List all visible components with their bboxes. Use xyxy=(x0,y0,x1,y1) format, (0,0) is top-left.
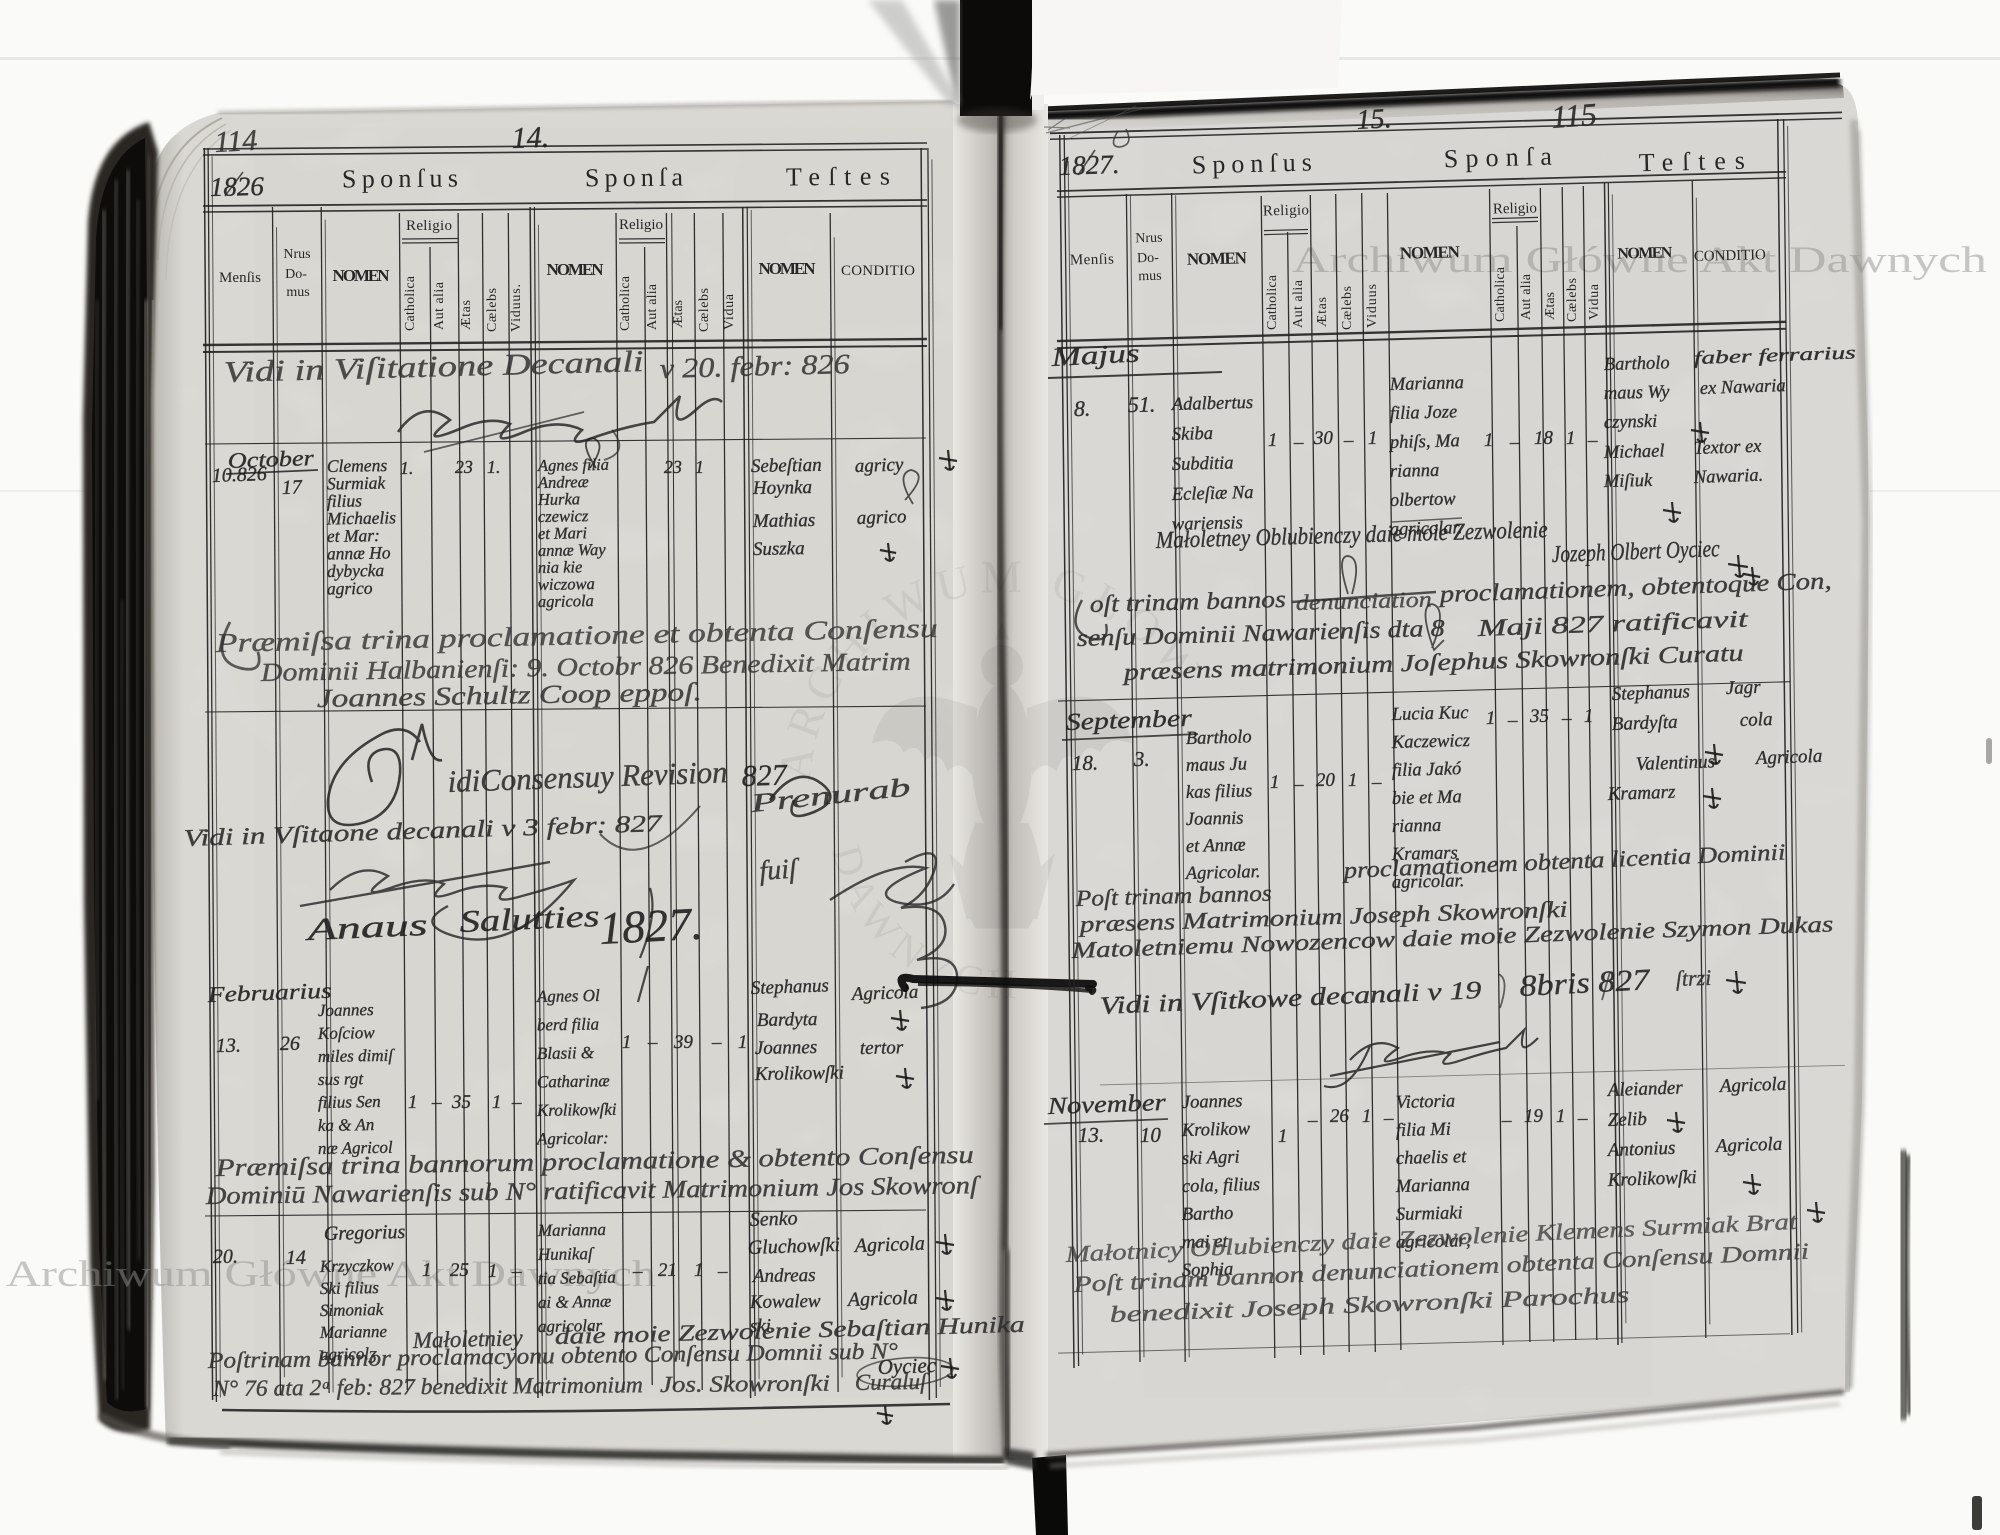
svg-text:Victoria: Victoria xyxy=(1396,1091,1456,1113)
svg-text:Menſis: Menſis xyxy=(1070,251,1115,268)
svg-text:8.: 8. xyxy=(1074,396,1091,421)
svg-text:Bartho: Bartho xyxy=(1182,1204,1234,1225)
svg-text:Anaus: Anaus xyxy=(304,907,429,947)
svg-text:1: 1 xyxy=(1484,430,1494,451)
svg-text:sus rgt: sus rgt xyxy=(318,1069,365,1089)
svg-text:November: November xyxy=(1046,1090,1167,1120)
svg-text:Catholica: Catholica xyxy=(1493,266,1508,322)
svg-text:Zelib: Zelib xyxy=(1607,1109,1647,1131)
svg-text:Sebeſtian: Sebeſtian xyxy=(751,455,822,477)
svg-text:Agricola: Agricola xyxy=(849,982,918,1005)
svg-text:Nrus: Nrus xyxy=(283,247,310,262)
svg-text:Jagr: Jagr xyxy=(1725,677,1761,699)
svg-text:13.: 13. xyxy=(216,1035,241,1057)
svg-text:Skiba: Skiba xyxy=(1172,424,1214,445)
svg-text:13.: 13. xyxy=(1078,1123,1105,1147)
svg-text:Do-: Do- xyxy=(285,267,307,282)
svg-text:Ætas: Ætas xyxy=(1543,292,1558,320)
svg-text:115: 115 xyxy=(1550,96,1598,135)
svg-text:1: 1 xyxy=(1270,772,1280,793)
svg-text:Bardyſta: Bardyſta xyxy=(1611,712,1677,735)
svg-text:Krolikowſki: Krolikowſki xyxy=(1606,1167,1697,1191)
svg-text:–: – xyxy=(431,1092,442,1113)
svg-text:Kaczewicz: Kaczewicz xyxy=(1391,731,1471,753)
svg-text:14: 14 xyxy=(286,1247,306,1269)
svg-text:1: 1 xyxy=(694,1260,704,1281)
svg-text:phiſs, Ma: phiſs, Ma xyxy=(1388,431,1460,453)
svg-text:Cælebs: Cælebs xyxy=(697,288,712,332)
svg-text:1: 1 xyxy=(1584,706,1594,727)
svg-text:Subditia: Subditia xyxy=(1172,453,1234,475)
svg-text:51.: 51. xyxy=(1128,392,1156,417)
svg-text:Aut alia: Aut alia xyxy=(1291,279,1306,328)
svg-text:Agricolar:: Agricolar: xyxy=(536,1128,609,1148)
svg-text:–: – xyxy=(511,1092,522,1113)
svg-text:35: 35 xyxy=(451,1092,471,1113)
svg-text:20: 20 xyxy=(1316,770,1336,791)
svg-text:et Annæ: et Annæ xyxy=(1186,835,1246,857)
svg-text:1: 1 xyxy=(408,1092,418,1113)
svg-text:Bardyta: Bardyta xyxy=(757,1009,818,1031)
svg-text:filia Joze: filia Joze xyxy=(1390,402,1458,424)
svg-text:–: – xyxy=(647,1032,658,1053)
svg-text:23: 23 xyxy=(455,457,473,477)
svg-text:114: 114 xyxy=(214,124,258,159)
svg-text:Joannis: Joannis xyxy=(1186,808,1244,829)
svg-text:1826: 1826 xyxy=(210,171,265,202)
svg-text:Stephanus: Stephanus xyxy=(1611,681,1690,705)
svg-text:bie et Ma: bie et Ma xyxy=(1392,787,1462,809)
svg-text:Krzyczkow: Krzyczkow xyxy=(319,1256,395,1276)
svg-text:Jos. Skowronſki: Jos. Skowronſki xyxy=(660,1371,830,1397)
svg-text:1: 1 xyxy=(1566,428,1576,449)
svg-text:–: – xyxy=(1293,432,1304,453)
svg-text:–: – xyxy=(632,1261,643,1282)
svg-text:Krolikowſki: Krolikowſki xyxy=(536,1100,617,1120)
svg-text:Agricola: Agricola xyxy=(1713,1134,1782,1157)
svg-text:maus Ju: maus Ju xyxy=(1186,754,1248,776)
svg-text:10: 10 xyxy=(1140,1123,1162,1147)
svg-text:czynski: czynski xyxy=(1604,412,1658,433)
svg-text:kas filius: kas filius xyxy=(1186,781,1253,803)
svg-text:olbertow: olbertow xyxy=(1390,489,1457,511)
svg-text:cola, filius: cola, filius xyxy=(1182,1175,1261,1197)
svg-text:Marianna: Marianna xyxy=(537,1220,606,1240)
svg-text:15.: 15. xyxy=(1356,103,1393,136)
svg-text:Agricola: Agricola xyxy=(845,1287,918,1311)
svg-text:–: – xyxy=(1371,772,1382,793)
svg-text:agricy: agricy xyxy=(854,454,904,477)
svg-text:NOMEN: NOMEN xyxy=(547,260,605,279)
svg-text:Marianna: Marianna xyxy=(1395,1175,1470,1197)
svg-text:mus: mus xyxy=(1138,269,1162,285)
svg-text:3.: 3. xyxy=(1133,747,1150,771)
svg-text:Andreas: Andreas xyxy=(751,1265,816,1287)
svg-text:Miſiuk: Miſiuk xyxy=(1603,471,1654,492)
svg-text:1: 1 xyxy=(695,457,704,477)
svg-text:Stephanus: Stephanus xyxy=(750,975,829,999)
svg-text:Ecleſiæ Na: Ecleſiæ Na xyxy=(1171,483,1254,505)
svg-text:1: 1 xyxy=(1268,430,1278,451)
svg-text:Curaluſ: Curaluſ xyxy=(855,1369,931,1395)
svg-text:oſt trinam bannos: oſt trinam bannos xyxy=(1089,587,1286,618)
svg-text:14.: 14. xyxy=(511,121,550,155)
svg-text:Februarius: Februarius xyxy=(206,978,332,1007)
svg-text:tia Sebaſtia: tia Sebaſtia xyxy=(538,1268,616,1288)
svg-text:Salutties: Salutties xyxy=(459,898,600,939)
svg-text:1827.: 1827. xyxy=(1058,149,1120,181)
svg-text:–: – xyxy=(1577,1108,1588,1129)
svg-text:maus Wy: maus Wy xyxy=(1604,382,1671,404)
svg-text:18: 18 xyxy=(1534,428,1554,449)
svg-text:–: – xyxy=(1507,710,1518,731)
svg-text:Aut alia: Aut alia xyxy=(432,281,447,330)
svg-text:1: 1 xyxy=(1486,708,1496,729)
svg-text:Religio: Religio xyxy=(406,218,452,234)
svg-text:Cælebs: Cælebs xyxy=(1565,278,1580,322)
svg-text:Krolikow: Krolikow xyxy=(1181,1119,1251,1141)
svg-text:CONDITIO: CONDITIO xyxy=(841,263,915,279)
svg-text:–: – xyxy=(511,1261,522,1282)
svg-text:Kramarz: Kramarz xyxy=(1606,782,1676,805)
svg-text:Senko: Senko xyxy=(749,1207,798,1231)
svg-text:10.826: 10.826 xyxy=(211,463,267,487)
svg-text:1: 1 xyxy=(1348,770,1358,791)
svg-text:30: 30 xyxy=(1313,428,1334,449)
svg-text:–: – xyxy=(1383,1108,1394,1129)
svg-text:cola: cola xyxy=(1739,709,1772,731)
svg-text:Catholica: Catholica xyxy=(1265,274,1280,330)
svg-text:17: 17 xyxy=(281,476,303,499)
svg-text:Cælebs: Cælebs xyxy=(485,288,500,332)
svg-text:Krolikowſki: Krolikowſki xyxy=(754,1062,844,1085)
svg-text:rianna: rianna xyxy=(1390,461,1440,482)
svg-text:filius Sen: filius Sen xyxy=(318,1092,381,1112)
svg-text:Joannes: Joannes xyxy=(755,1037,818,1059)
svg-text:21: 21 xyxy=(658,1260,677,1281)
svg-text:ski Agri: ski Agri xyxy=(1182,1147,1240,1169)
svg-text:ex Nawaria: ex Nawaria xyxy=(1699,376,1785,399)
svg-text:1: 1 xyxy=(488,1261,498,1282)
svg-text:–: – xyxy=(1587,430,1598,451)
svg-text:26: 26 xyxy=(280,1033,300,1055)
svg-text:23: 23 xyxy=(664,457,682,477)
svg-text:1: 1 xyxy=(1556,1106,1566,1127)
svg-text:Agricola: Agricola xyxy=(1717,1074,1786,1097)
svg-text:39: 39 xyxy=(673,1032,694,1053)
svg-text:NOMEN: NOMEN xyxy=(333,266,391,285)
svg-text:20.: 20. xyxy=(213,1246,238,1268)
svg-text:Do-: Do- xyxy=(1137,251,1159,267)
svg-text:Catholica: Catholica xyxy=(403,275,418,331)
svg-text:CONDITIO: CONDITIO xyxy=(1694,247,1767,265)
svg-text:Catharinæ: Catharinæ xyxy=(537,1071,610,1091)
svg-text:miles dimiſ: miles dimiſ xyxy=(318,1046,396,1066)
svg-text:chaelis et: chaelis et xyxy=(1396,1147,1468,1169)
svg-text:1: 1 xyxy=(622,1032,632,1053)
svg-text:–: – xyxy=(1509,432,1520,453)
svg-text:Valentinus: Valentinus xyxy=(1635,751,1715,775)
svg-text:1: 1 xyxy=(1362,1106,1372,1127)
svg-text:fuiſ: fuiſ xyxy=(758,853,801,887)
svg-text:–: – xyxy=(711,1032,722,1053)
svg-text:Mathias: Mathias xyxy=(752,510,816,532)
svg-text:35: 35 xyxy=(1529,706,1549,727)
svg-text:filia Mi: filia Mi xyxy=(1396,1120,1452,1141)
svg-text:Koſciow: Koſciow xyxy=(317,1023,376,1043)
svg-text:Aleiander: Aleiander xyxy=(1605,1077,1683,1101)
svg-text:Hunikaſ: Hunikaſ xyxy=(537,1244,595,1264)
svg-text:Lucia Kuc: Lucia Kuc xyxy=(1391,703,1470,725)
svg-text:Religio: Religio xyxy=(1493,200,1537,217)
svg-text:1: 1 xyxy=(738,1032,748,1053)
svg-text:Blasii &: Blasii & xyxy=(537,1043,595,1063)
svg-text:–: – xyxy=(717,1261,728,1282)
svg-text:Nrus: Nrus xyxy=(1135,231,1163,247)
svg-text:Menſis: Menſis xyxy=(219,270,261,286)
svg-text:Simoniak: Simoniak xyxy=(320,1300,384,1320)
svg-text:Catholica: Catholica xyxy=(618,275,633,331)
svg-text:1.: 1. xyxy=(487,457,501,477)
svg-text:Vidua: Vidua xyxy=(722,293,737,330)
svg-text:agrico: agrico xyxy=(856,506,906,529)
svg-text:tertor: tertor xyxy=(860,1037,904,1059)
svg-text:Ætas: Ætas xyxy=(459,300,474,330)
svg-text:agricola: agricola xyxy=(538,591,594,611)
svg-text:filia Jakó: filia Jakó xyxy=(1392,759,1462,781)
svg-text:ai & Annæ: ai & Annæ xyxy=(538,1292,612,1312)
svg-text:Aut alia: Aut alia xyxy=(645,283,660,330)
svg-text:Ætas: Ætas xyxy=(1315,297,1330,327)
svg-text:rianna: rianna xyxy=(1392,816,1442,837)
svg-text:Joannes: Joannes xyxy=(1182,1091,1243,1113)
svg-text:Suszka: Suszka xyxy=(753,538,805,560)
svg-text:Viduus: Viduus xyxy=(1365,284,1380,328)
svg-text:mus: mus xyxy=(286,285,309,300)
svg-text:NOMEN: NOMEN xyxy=(759,259,817,278)
svg-text:Religio: Religio xyxy=(1263,202,1309,219)
svg-text:–: – xyxy=(1501,1110,1512,1131)
svg-text:Nawaria.: Nawaria. xyxy=(1692,466,1763,488)
svg-text:1: 1 xyxy=(1368,428,1378,449)
svg-text:Bartholo: Bartholo xyxy=(1604,353,1670,375)
svg-text:Surmiaki: Surmiaki xyxy=(1396,1203,1463,1225)
svg-text:Viduus.: Viduus. xyxy=(509,284,524,332)
svg-text:1: 1 xyxy=(1278,1126,1288,1147)
svg-text:8bris 827: 8bris 827 xyxy=(1519,963,1653,1003)
svg-text:–: – xyxy=(1293,774,1304,795)
svg-text:berd filia: berd filia xyxy=(537,1014,600,1034)
svg-text:Hoynka: Hoynka xyxy=(752,477,812,499)
svg-text:Aut alia: Aut alia xyxy=(1519,273,1534,320)
svg-text:–: – xyxy=(1307,1110,1318,1131)
svg-text:Agricola: Agricola xyxy=(1753,746,1822,769)
svg-text:1: 1 xyxy=(492,1092,502,1113)
svg-text:September: September xyxy=(1065,706,1193,736)
svg-text:Cælebs: Cælebs xyxy=(1340,286,1355,330)
svg-text:Bartholo: Bartholo xyxy=(1186,727,1252,749)
svg-text:25: 25 xyxy=(450,1260,469,1281)
svg-text:Religio: Religio xyxy=(619,217,663,233)
svg-text:Vidua: Vidua xyxy=(1587,283,1602,320)
svg-text:Gluchowſki: Gluchowſki xyxy=(747,1234,840,1259)
svg-text:Michael: Michael xyxy=(1603,441,1665,463)
svg-text:Agricola: Agricola xyxy=(852,1233,925,1257)
svg-text:Marianna: Marianna xyxy=(1389,373,1464,395)
svg-text:Adalbertus: Adalbertus xyxy=(1170,393,1254,415)
svg-text:ν 20. febr: 826: ν 20. febr: 826 xyxy=(659,349,850,385)
svg-text:1: 1 xyxy=(422,1260,432,1281)
svg-text:19: 19 xyxy=(1524,1106,1544,1127)
svg-text:Kowalew: Kowalew xyxy=(749,1291,821,1313)
svg-text:Joannes: Joannes xyxy=(318,1000,374,1020)
svg-text:ſtrzi: ſtrzi xyxy=(1675,965,1711,991)
svg-text:1.: 1. xyxy=(400,458,414,478)
svg-text:Ætas: Ætas xyxy=(671,300,686,328)
svg-text:26: 26 xyxy=(1330,1106,1350,1127)
svg-text:Textor ex: Textor ex xyxy=(1693,437,1762,459)
svg-text:Ski filius: Ski filius xyxy=(320,1278,380,1298)
svg-text:NOMEN: NOMEN xyxy=(1617,244,1673,262)
svg-text:Agnes Ol: Agnes Ol xyxy=(536,986,600,1006)
svg-text:Gregorius: Gregorius xyxy=(324,1221,406,1245)
svg-text:NOMEN: NOMEN xyxy=(1187,248,1248,268)
svg-text:agrico: agrico xyxy=(327,578,373,599)
svg-text:18.: 18. xyxy=(1072,751,1099,775)
svg-text:–: – xyxy=(1561,708,1572,729)
svg-text:Marianne: Marianne xyxy=(319,1322,388,1342)
svg-text:–: – xyxy=(1343,430,1354,451)
svg-text:Majus: Majus xyxy=(1049,338,1140,372)
svg-text:NOMEN: NOMEN xyxy=(1400,242,1461,262)
svg-text:N° 76 ata 2ᵃ feb: 827 benedixi: N° 76 ata 2ᵃ feb: 827 benedixit Matrimon… xyxy=(212,1372,643,1401)
svg-text:ka & An: ka & An xyxy=(318,1115,375,1135)
svg-text:Antonius: Antonius xyxy=(1605,1138,1675,1161)
